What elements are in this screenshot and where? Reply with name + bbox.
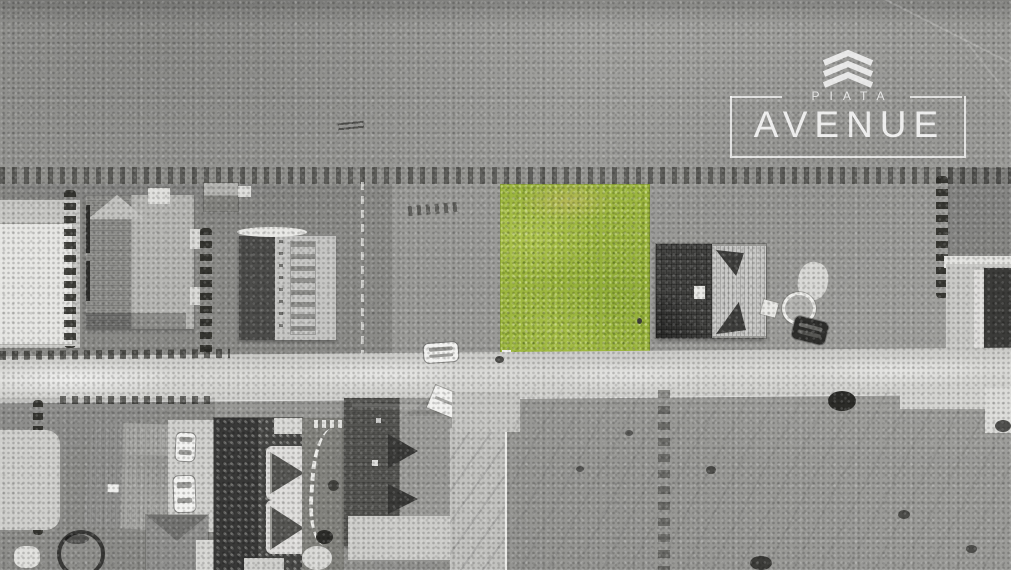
scrub-boundary-row bbox=[0, 167, 1011, 184]
round-garden-pool bbox=[57, 530, 105, 570]
garden-courtyard bbox=[302, 418, 344, 570]
triple-chevron-icon bbox=[819, 50, 877, 92]
hedge-row bbox=[200, 228, 212, 356]
fence-line bbox=[505, 428, 507, 570]
field-bush bbox=[706, 466, 716, 474]
bottom-field bbox=[508, 388, 1011, 570]
house-roof-right-edge bbox=[984, 268, 1011, 354]
roof-dark-half bbox=[239, 236, 275, 340]
roof-dark-bar bbox=[86, 205, 90, 253]
pool-shadow bbox=[65, 534, 89, 544]
white-garden-circle bbox=[302, 546, 332, 570]
field-bush bbox=[966, 545, 977, 553]
highlighted-plot-for-sale bbox=[500, 184, 650, 358]
rough-ground bbox=[948, 168, 1011, 268]
roof-dark-bar bbox=[86, 261, 90, 301]
parked-car-white bbox=[423, 342, 458, 363]
stepping-stone-row bbox=[314, 420, 344, 428]
light-surround-patio bbox=[348, 516, 458, 560]
plot-speckles bbox=[500, 184, 650, 358]
parked-car-white bbox=[173, 476, 195, 513]
field-scrub-line bbox=[658, 390, 670, 570]
roof-gable-shadow bbox=[146, 515, 208, 541]
watermark-logo: PIATA AVENUE bbox=[726, 50, 970, 160]
white-object bbox=[190, 229, 200, 249]
roof-shadow-corner bbox=[656, 296, 712, 338]
field-bush bbox=[750, 556, 772, 570]
white-glare bbox=[237, 227, 307, 237]
white-patch bbox=[196, 540, 216, 570]
top-field-dark-strip bbox=[0, 0, 1011, 26]
roof-valley-dark bbox=[388, 484, 418, 514]
roof-darker-half bbox=[214, 418, 258, 570]
white-corner bbox=[274, 418, 302, 434]
chimney bbox=[694, 286, 705, 299]
light-roof-strip bbox=[974, 270, 984, 352]
fence-dashes bbox=[60, 396, 215, 404]
watermark-brand-top: PIATA bbox=[726, 89, 970, 103]
white-panel bbox=[0, 224, 72, 344]
house-roof-panel-building bbox=[239, 236, 336, 340]
field-bush bbox=[576, 466, 584, 472]
fence-line bbox=[361, 182, 364, 364]
field-bush bbox=[995, 420, 1011, 432]
skylight bbox=[108, 484, 119, 492]
watermark-brand-main: AVENUE bbox=[726, 104, 966, 146]
house-roof-dark-dormered bbox=[214, 418, 302, 570]
garden-bush bbox=[316, 530, 333, 544]
hedge-row bbox=[64, 190, 76, 348]
white-object bbox=[238, 186, 251, 197]
small-figure bbox=[637, 318, 642, 324]
house-roof-two-tone bbox=[656, 244, 766, 338]
aerial-photo: PIATA AVENUE bbox=[0, 0, 1011, 570]
white-patio bbox=[148, 188, 170, 204]
field-bush bbox=[898, 510, 910, 519]
roof-shadow-band bbox=[86, 313, 186, 329]
pavement-patch bbox=[0, 430, 60, 530]
field-bush bbox=[625, 430, 633, 436]
house-roof-top-left bbox=[86, 195, 194, 329]
chimney bbox=[376, 418, 381, 423]
white-object bbox=[190, 287, 200, 305]
roof-valley-dark bbox=[388, 434, 418, 468]
garden-shed-roof bbox=[204, 183, 238, 211]
garden-bush bbox=[328, 480, 339, 491]
chimney bbox=[372, 460, 378, 466]
roof-rivet-column bbox=[279, 240, 283, 336]
white-patch bbox=[14, 546, 40, 568]
road-dark-spot bbox=[495, 356, 504, 363]
parked-car-white bbox=[175, 433, 195, 462]
hatched-concrete-pad bbox=[450, 428, 506, 570]
field-bush bbox=[828, 391, 856, 411]
skylight-ladder-panels bbox=[291, 242, 315, 334]
white-strip bbox=[244, 558, 284, 570]
